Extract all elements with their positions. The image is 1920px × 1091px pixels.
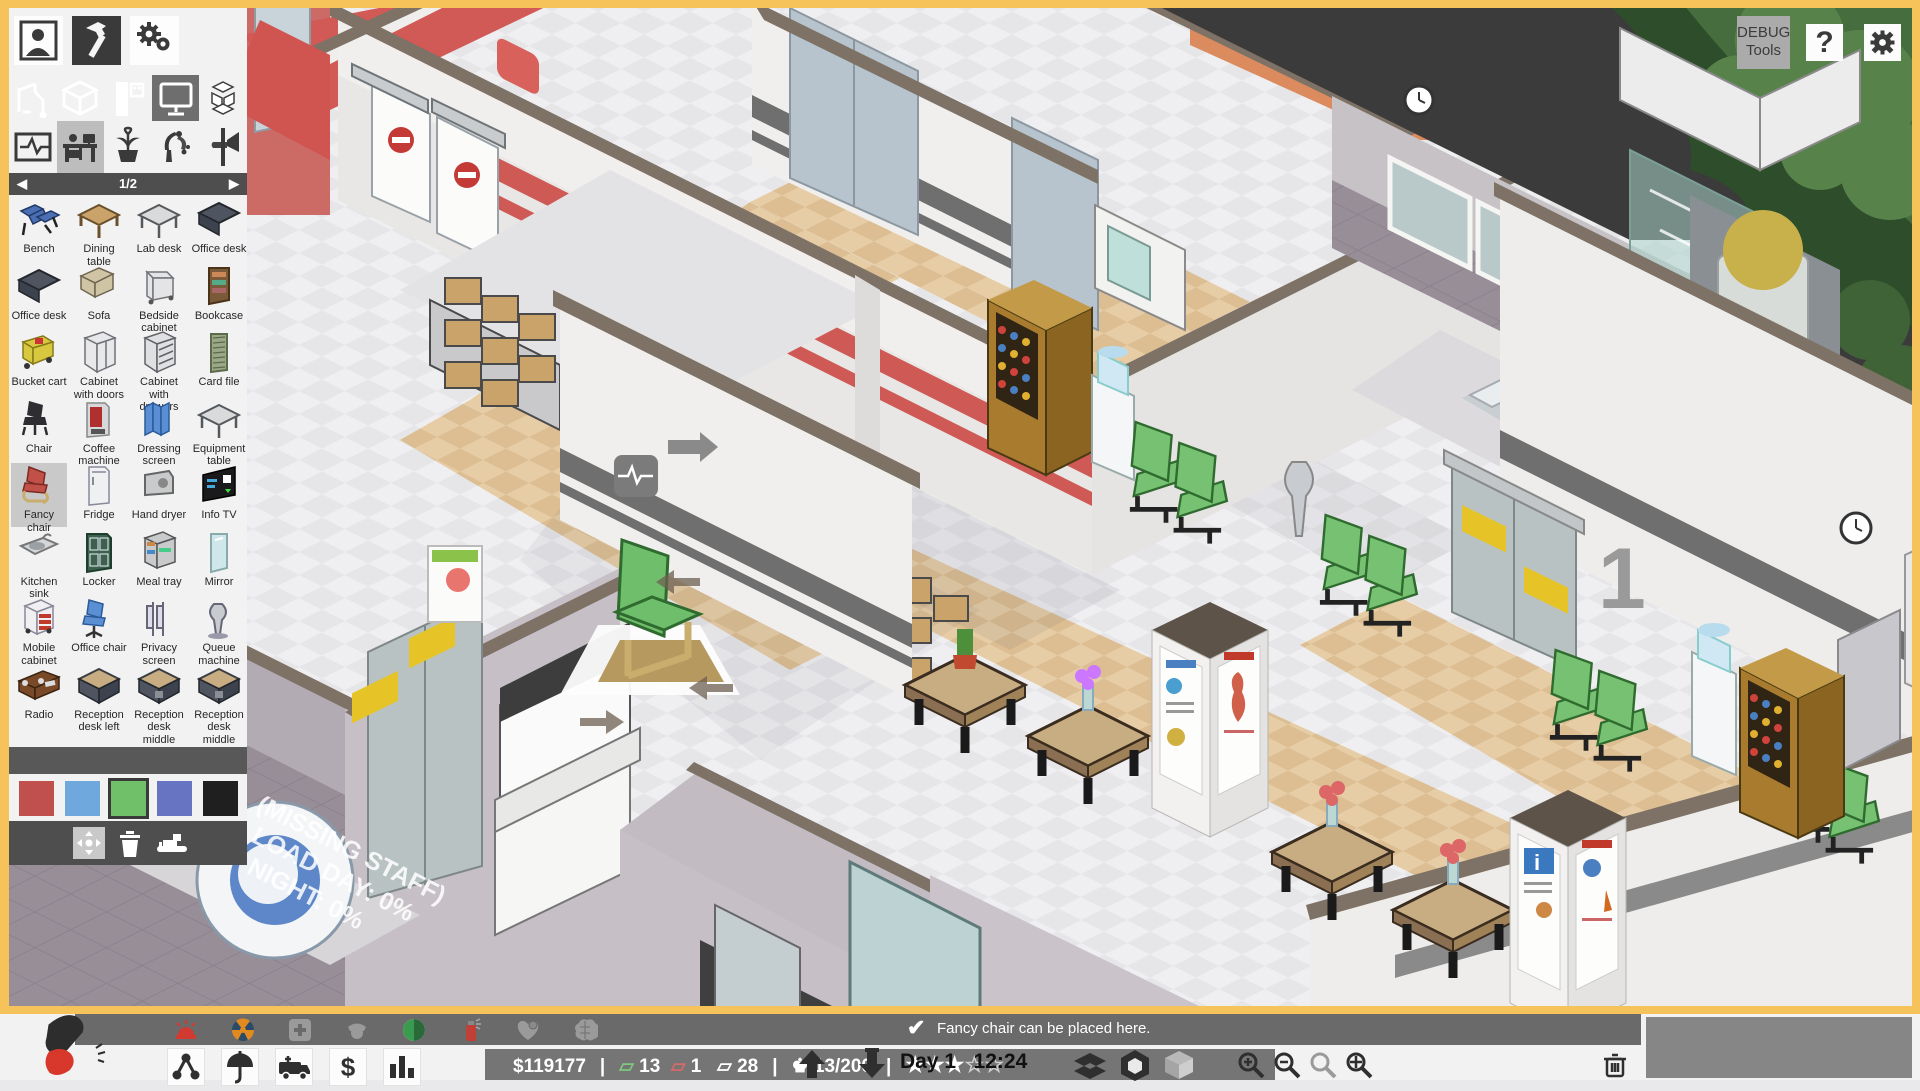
svg-text:$: $ bbox=[341, 1052, 356, 1082]
svg-text:1: 1 bbox=[1598, 531, 1646, 627]
svg-text:i: i bbox=[1534, 850, 1540, 875]
